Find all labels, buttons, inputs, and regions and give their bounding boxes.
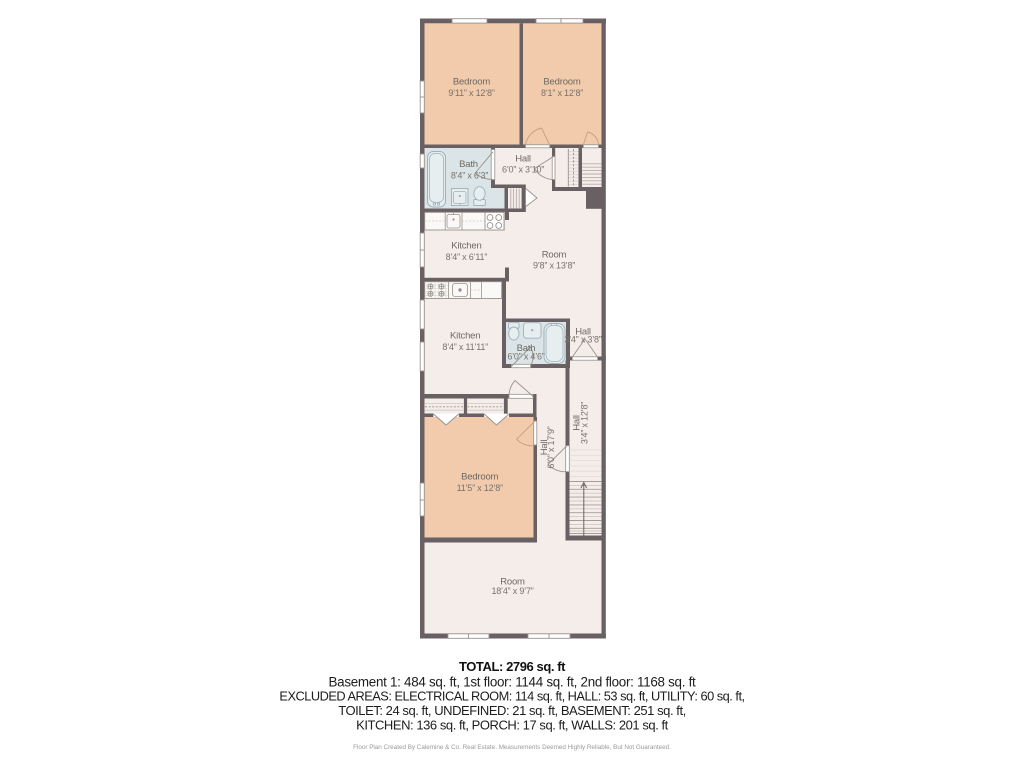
svg-text:8’1” x 12’8”: 8’1” x 12’8” bbox=[541, 88, 583, 98]
svg-text:TOILET: 24 sq. ft, UNDEFINED:: TOILET: 24 sq. ft, UNDEFINED: 21 sq. ft,… bbox=[338, 703, 686, 718]
svg-text:Hall: Hall bbox=[515, 154, 531, 165]
svg-text:EXCLUDED AREAS: ELECTRICAL ROO: EXCLUDED AREAS: ELECTRICAL ROOM: 114 sq.… bbox=[279, 688, 744, 703]
svg-text:Basement 1: 484 sq. ft, 1st fl: Basement 1: 484 sq. ft, 1st floor: 1144 … bbox=[329, 674, 697, 689]
svg-text:6’0” x 3’10”: 6’0” x 3’10” bbox=[502, 165, 544, 175]
svg-text:Kitchen: Kitchen bbox=[450, 331, 480, 342]
svg-text:TOTAL: 2796 sq. ft: TOTAL: 2796 sq. ft bbox=[459, 659, 566, 674]
svg-text:8’4” x 11’11”: 8’4” x 11’11” bbox=[442, 342, 488, 352]
svg-text:Kitchen: Kitchen bbox=[451, 241, 481, 252]
svg-text:Bedroom: Bedroom bbox=[543, 77, 580, 88]
svg-text:11’5” x 12’8”: 11’5” x 12’8” bbox=[457, 483, 503, 493]
svg-text:Bath: Bath bbox=[459, 159, 478, 170]
svg-text:18’4” x 9’7”: 18’4” x 9’7” bbox=[491, 586, 533, 596]
svg-text:Bedroom: Bedroom bbox=[453, 77, 490, 88]
svg-text:8’4” x 6’3”: 8’4” x 6’3” bbox=[451, 171, 489, 181]
svg-text:9’8” x 13’8”: 9’8” x 13’8” bbox=[533, 261, 575, 271]
svg-text:Room: Room bbox=[542, 250, 567, 261]
svg-text:9’11” x 12’8”: 9’11” x 12’8” bbox=[448, 88, 494, 98]
svg-text:6’0” x 17’9”: 6’0” x 17’9” bbox=[546, 426, 556, 468]
svg-text:KITCHEN: 136 sq. ft, PORCH: 17: KITCHEN: 136 sq. ft, PORCH: 17 sq. ft, W… bbox=[356, 717, 669, 732]
svg-text:Floor Plan Created By Calemine: Floor Plan Created By Calemine & Co. Rea… bbox=[353, 744, 671, 751]
svg-text:8’4” x 6’11”: 8’4” x 6’11” bbox=[446, 252, 488, 262]
svg-text:6’0” x 4’6”: 6’0” x 4’6” bbox=[507, 352, 545, 362]
svg-text:3’4” x 12’8”: 3’4” x 12’8” bbox=[580, 402, 590, 444]
svg-text:Bedroom: Bedroom bbox=[461, 472, 498, 483]
svg-text:3’4” x 3’8”: 3’4” x 3’8” bbox=[564, 335, 602, 345]
